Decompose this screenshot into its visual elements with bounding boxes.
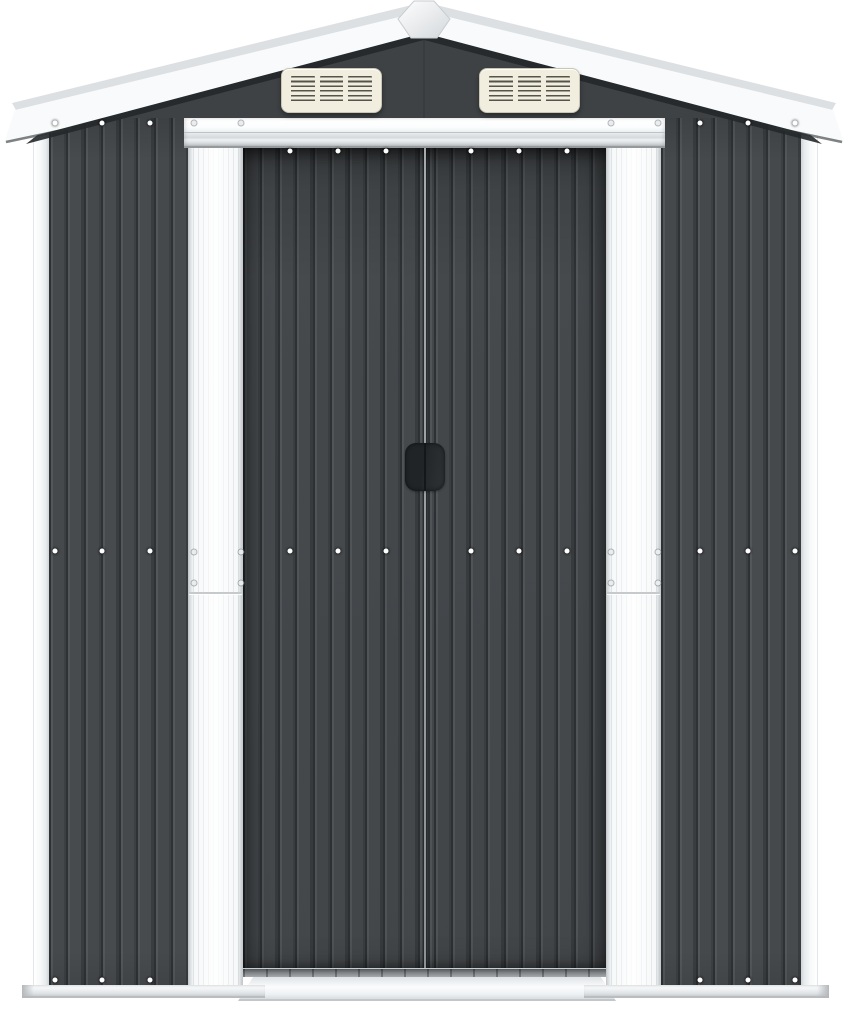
sliding-door-assembly [243,146,606,968]
door-side-trim-left [188,118,243,985]
gable-panel [70,28,778,118]
vent-louver-column [320,76,344,104]
side-wall-left [49,118,188,985]
vent-louver-column [489,76,513,104]
door-gap-line [424,146,426,968]
door-header-track [184,118,665,148]
sliding-door-right [425,146,607,968]
door-threshold-ramp [238,977,616,1001]
corner-trim-left [33,118,49,985]
vent-louver-column [546,76,570,104]
side-wall-right [661,118,801,985]
gable-vent-right [479,68,580,113]
corner-trim-right [801,118,818,985]
gable-center-seam [423,38,425,118]
roof-finial [398,1,450,38]
base-rail-left [22,985,265,998]
vent-louver-column [291,76,315,104]
door-handle [405,443,445,491]
door-side-trim-right [606,118,661,985]
base-rail-right [584,985,829,998]
vent-louver-column [518,76,542,104]
gable-vent-left [281,68,382,113]
vent-louver-column [348,76,372,104]
sliding-door-left [243,146,425,968]
door-bottom-track [243,968,606,977]
product-photo-garden-shed [0,0,849,1013]
